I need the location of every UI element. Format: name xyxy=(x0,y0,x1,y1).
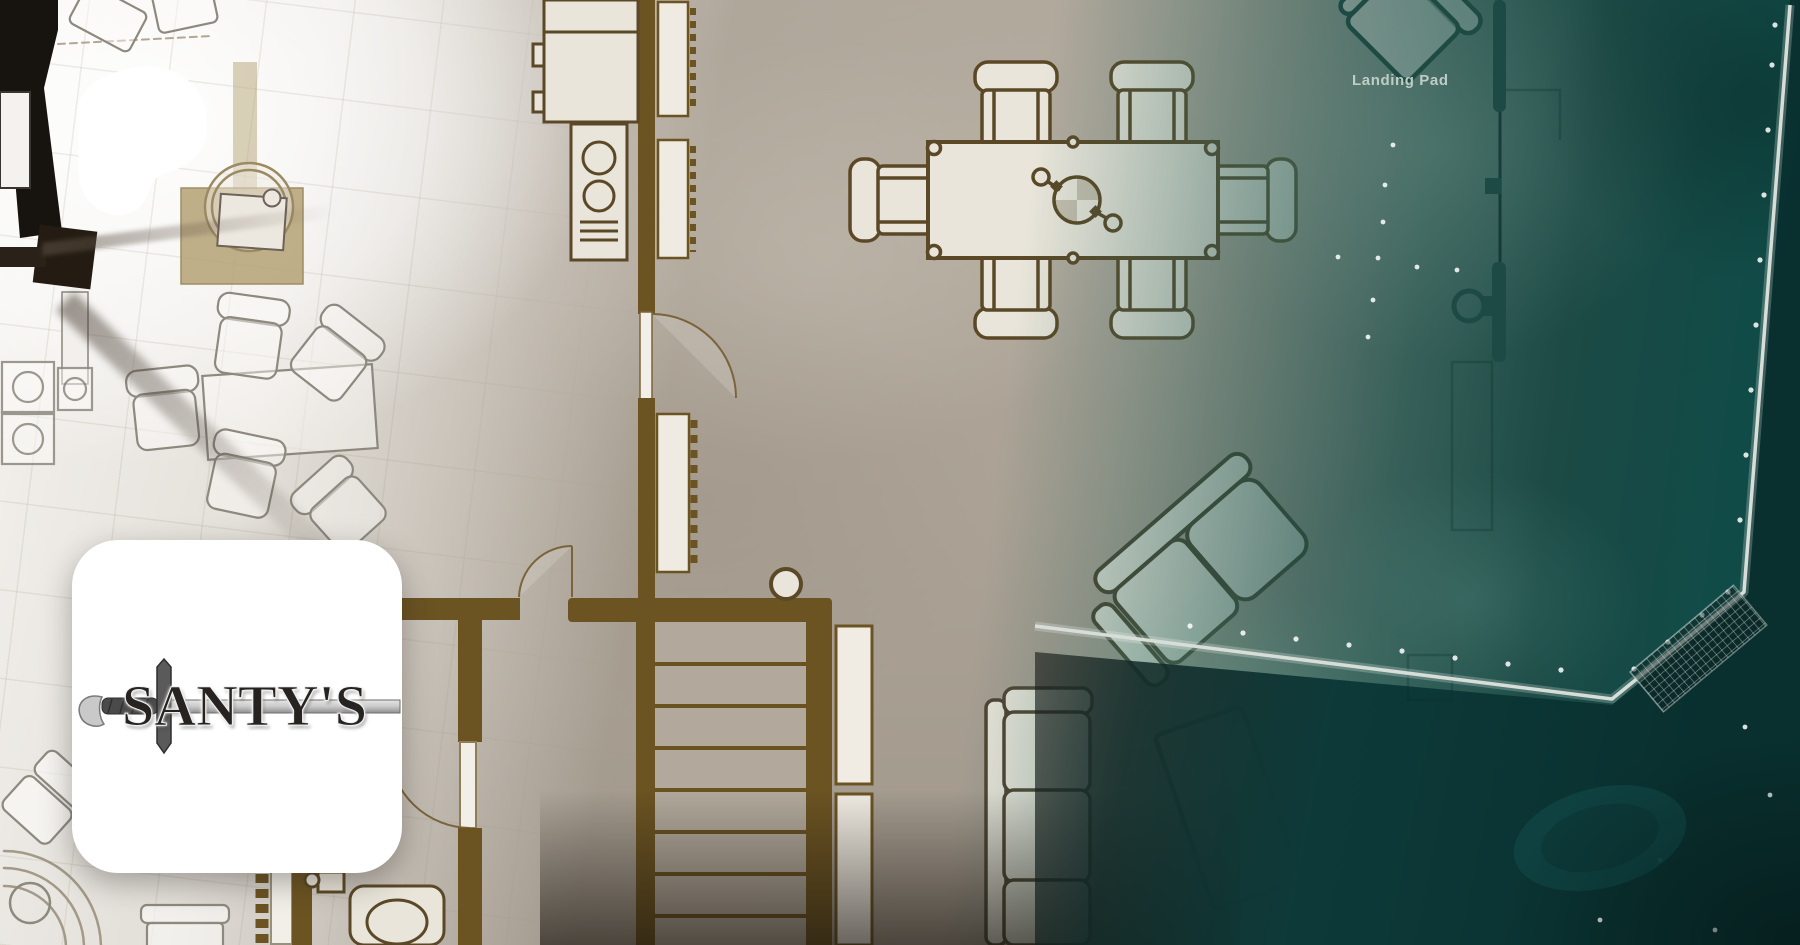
patreon-banner-floorplan: Landing Pad SANTY'S xyxy=(0,0,1800,945)
deck-understructure xyxy=(1408,0,1560,700)
creator-name: SANTY'S xyxy=(122,672,402,739)
deck-railing xyxy=(1035,5,1790,699)
pole-knob xyxy=(1454,291,1484,321)
railing-glow xyxy=(1035,5,1790,699)
creator-avatar-tile[interactable]: SANTY'S xyxy=(72,540,402,873)
landing-pad-label: Landing Pad xyxy=(1352,72,1449,89)
patreon-logo xyxy=(72,64,214,220)
corner-vignette xyxy=(1520,740,1800,945)
mast-pole xyxy=(1454,0,1506,362)
